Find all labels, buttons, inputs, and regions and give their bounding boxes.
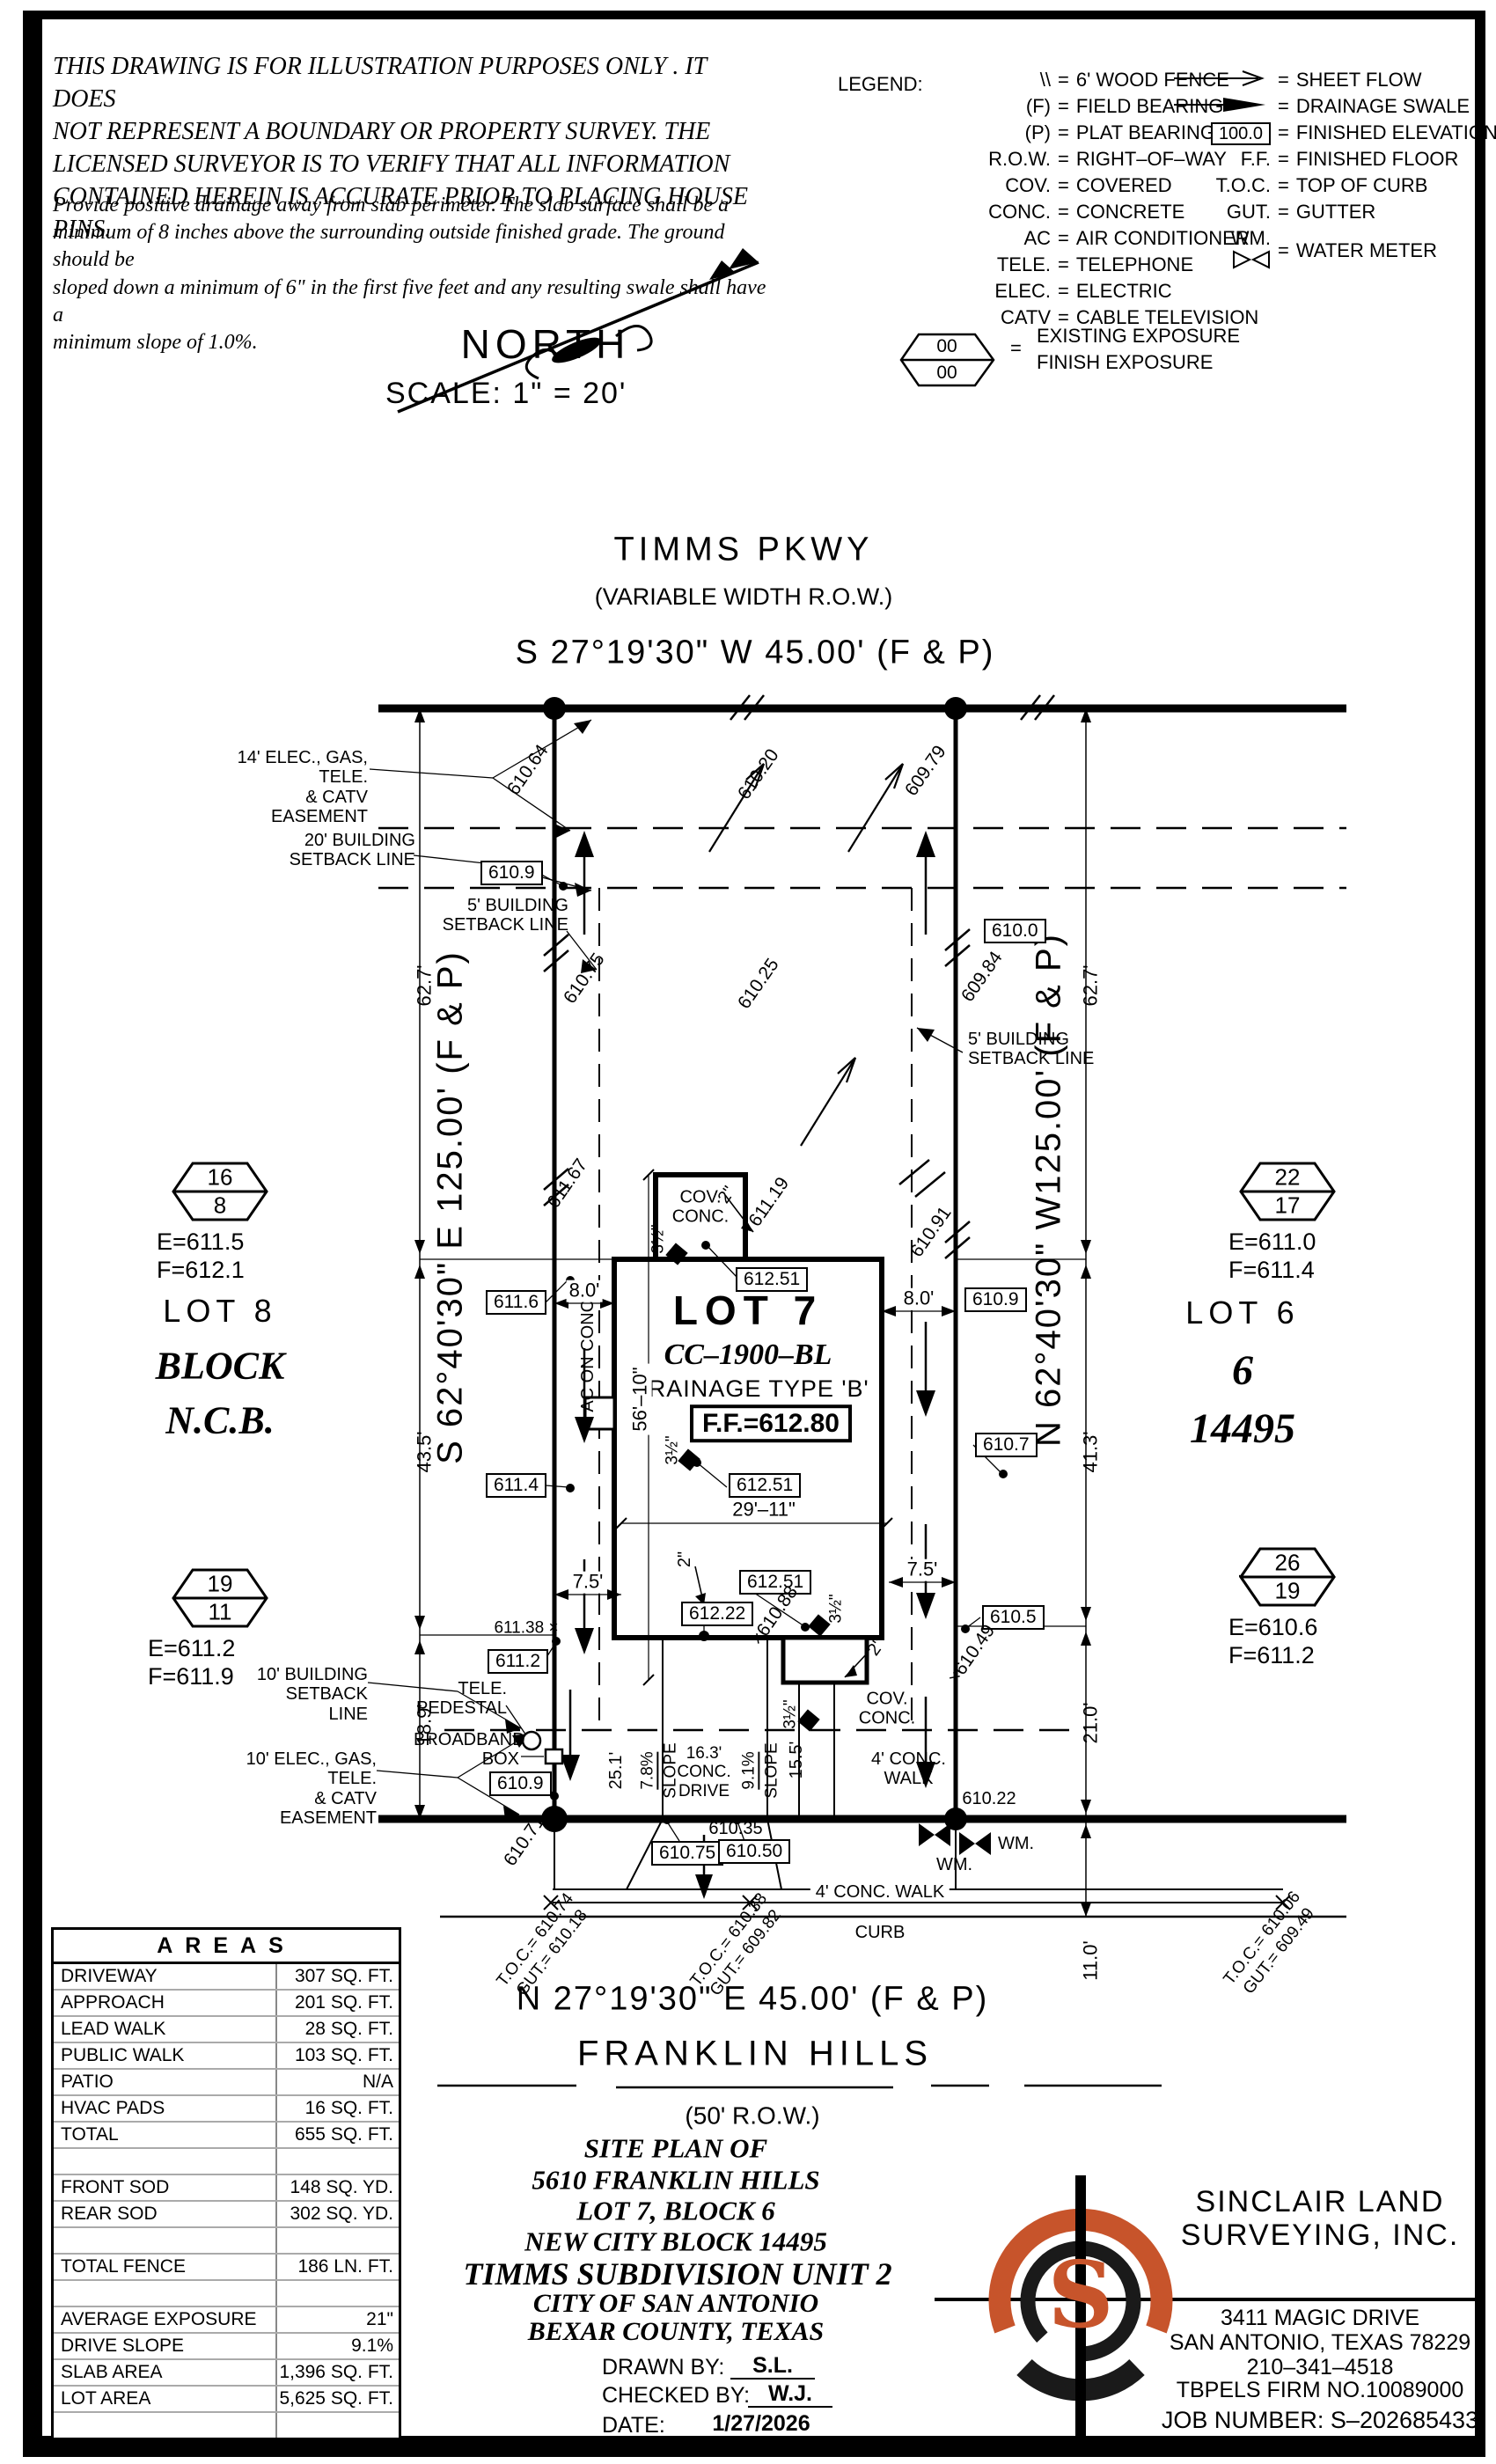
firm-name-line1: SINCLAIR LAND <box>1196 2185 1445 2218</box>
site-plan-sheet: THIS DRAWING IS FOR ILLUSTRATION PURPOSE… <box>0 0 1496 2464</box>
firm-job-number: JOB NUMBER: S–202685433 <box>1162 2407 1478 2433</box>
firm-logo-icon <box>0 0 1496 2464</box>
firm-tbpels: TBPELS FIRM NO.10089000 <box>1177 2378 1464 2402</box>
firm-phone: 210–341–4518 <box>1247 2355 1394 2380</box>
firm-name-line2: SURVEYING, INC. <box>1181 2218 1460 2252</box>
firm-logo-letter: S <box>1047 2244 1113 2346</box>
firm-address-line1: 3411 MAGIC DRIVE <box>1221 2306 1419 2330</box>
firm-address-line2: SAN ANTONIO, TEXAS 78229 <box>1170 2330 1470 2355</box>
